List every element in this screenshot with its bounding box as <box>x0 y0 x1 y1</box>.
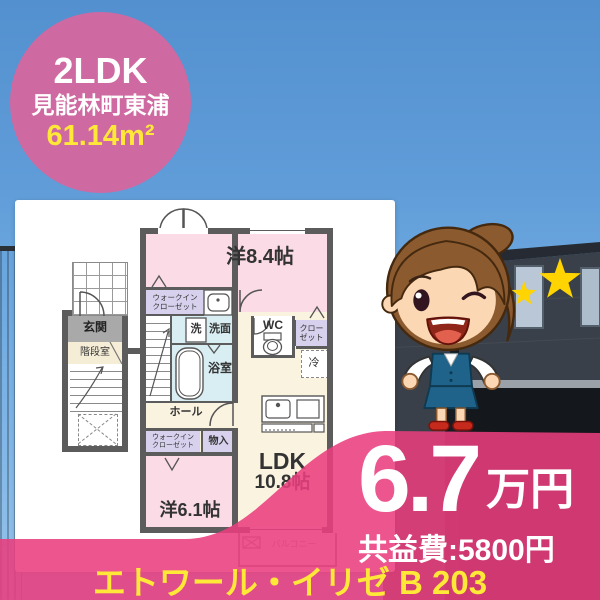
flyer: 洋8.4帖 ウォークイン クローゼット 洗 洗面 浴室 WC クロー ゼット 冷… <box>0 0 600 600</box>
rent-amount: 6.7 <box>358 436 478 523</box>
badge-location: 見能林町東浦 <box>32 92 170 118</box>
info-badge: 2LDK 見能林町東浦 61.14m² <box>10 12 191 193</box>
price-block: 6.7 万円 共益費:5800円 <box>358 436 596 569</box>
rent-unit: 万円 <box>486 453 574 517</box>
badge-area: 61.14m² <box>46 121 154 153</box>
badge-layout: 2LDK <box>53 52 147 90</box>
building-name: エトワール・イリゼ B 203 <box>55 556 525 600</box>
